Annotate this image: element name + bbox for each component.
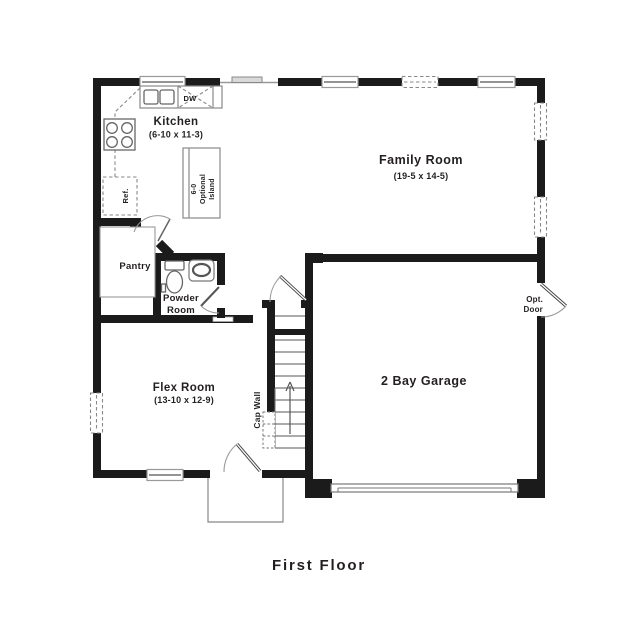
opt-door-label-line2: Door bbox=[524, 305, 543, 314]
window-family-1 bbox=[322, 77, 358, 88]
front-entry bbox=[208, 444, 283, 522]
toilet bbox=[165, 261, 184, 293]
window-family-optional-right-1 bbox=[535, 103, 547, 140]
cap-wall-rail bbox=[263, 412, 275, 448]
powder-door bbox=[201, 287, 219, 313]
island-label-line1: 6-0 bbox=[191, 184, 198, 195]
window-flex-optional-left bbox=[91, 393, 103, 433]
window-family-2 bbox=[478, 77, 515, 88]
refrigerator-symbol bbox=[103, 177, 137, 215]
powder-room-label-line2: Room bbox=[167, 305, 195, 316]
family-room-label: Family Room bbox=[379, 153, 463, 167]
window-transom bbox=[220, 77, 278, 83]
interior-walls bbox=[93, 218, 545, 498]
toilet-paper-holder bbox=[162, 284, 166, 292]
garage-door bbox=[331, 484, 518, 492]
cap-wall-label: Cap Wall bbox=[252, 391, 262, 428]
powder-sink bbox=[189, 260, 214, 281]
flex-room-label: Flex Room bbox=[153, 382, 215, 394]
refrigerator-label: Ref. bbox=[121, 189, 130, 204]
sink-basin-right bbox=[160, 90, 174, 104]
flex-room-dims: (13-10 x 12-9) bbox=[154, 395, 214, 405]
plan-title: First Floor bbox=[272, 557, 366, 574]
garage-label: 2 Bay Garage bbox=[381, 374, 467, 388]
window-flex-bottom bbox=[147, 470, 183, 481]
island-label-line2: Optional bbox=[200, 174, 207, 204]
garage-fixtures bbox=[331, 284, 566, 492]
opt-door-label-line1: Opt. bbox=[526, 295, 543, 304]
dishwasher-label: DW bbox=[184, 94, 198, 103]
optional-service-door bbox=[541, 284, 566, 317]
pantry-label: Pantry bbox=[119, 261, 151, 272]
front-door bbox=[224, 444, 260, 472]
kitchen-dims: (6-10 x 11-3) bbox=[149, 130, 203, 140]
range-cooktop bbox=[104, 119, 135, 150]
stairs-up-arrow bbox=[286, 382, 294, 434]
front-porch bbox=[208, 478, 283, 522]
island-label-line3: Island bbox=[209, 178, 216, 199]
garage-entry-door bbox=[270, 276, 306, 302]
family-room-dims: (19-5 x 14-5) bbox=[394, 171, 449, 181]
floor-plan-canvas: Kitchen (6-10 x 11-3) Family Room (19-5 … bbox=[0, 0, 640, 640]
sink-basin-left bbox=[144, 90, 158, 104]
window-family-optional-right-2 bbox=[535, 197, 547, 237]
floor-plan-page: Kitchen (6-10 x 11-3) Family Room (19-5 … bbox=[0, 0, 640, 640]
kitchen-label: Kitchen bbox=[154, 116, 199, 128]
window-family-optional-top bbox=[402, 77, 438, 88]
powder-room-label-line1: Powder bbox=[163, 293, 199, 304]
